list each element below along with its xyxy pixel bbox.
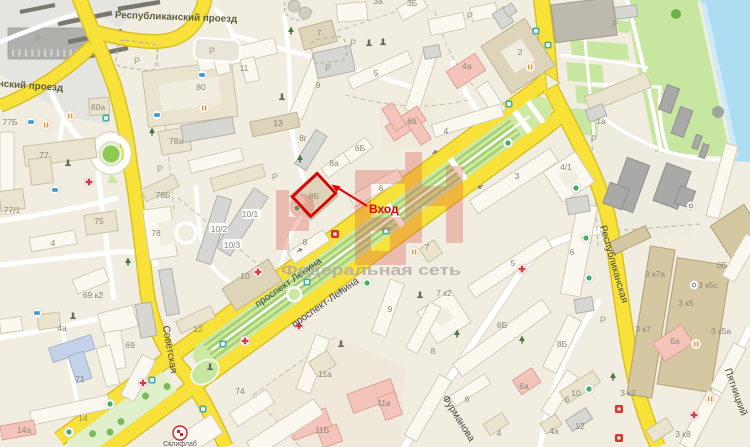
svg-text:3: 3 (515, 171, 520, 181)
svg-text:4а: 4а (549, 426, 559, 436)
svg-text:14а: 14а (17, 425, 31, 435)
svg-text:80: 80 (196, 82, 206, 92)
svg-text:5: 5 (374, 68, 379, 78)
svg-text:8Б: 8Б (557, 339, 568, 349)
svg-text:6: 6 (570, 247, 575, 257)
svg-text:78а: 78а (169, 136, 183, 146)
svg-text:75: 75 (94, 216, 104, 226)
svg-text:6а: 6а (407, 116, 417, 126)
svg-text:3 к7а: 3 к7а (645, 269, 666, 279)
svg-text:4: 4 (444, 126, 449, 136)
svg-text:Р: Р (325, 63, 331, 73)
svg-text:10/2: 10/2 (211, 224, 228, 234)
svg-text:71: 71 (75, 374, 85, 384)
svg-text:80а: 80а (91, 102, 105, 112)
svg-text:6: 6 (379, 183, 384, 193)
svg-text:2: 2 (518, 47, 523, 57)
svg-text:3 к8: 3 к8 (675, 429, 691, 439)
svg-text:Р: Р (209, 46, 215, 56)
svg-text:4: 4 (51, 238, 56, 248)
svg-text:8г: 8г (299, 133, 307, 143)
svg-text:12: 12 (575, 421, 585, 431)
svg-text:10: 10 (240, 271, 250, 281)
svg-text:7: 7 (317, 28, 322, 38)
svg-text:6Б: 6Б (717, 260, 728, 270)
svg-text:Р: Р (35, 34, 41, 44)
svg-text:Вход: Вход (369, 202, 399, 216)
svg-text:78Б: 78Б (155, 190, 170, 200)
svg-text:9: 9 (316, 80, 321, 90)
svg-text:4а: 4а (57, 323, 67, 333)
svg-text:Р: Р (612, 19, 618, 29)
svg-text:Р: Р (157, 164, 163, 174)
svg-text:3 к5а: 3 к5а (711, 326, 732, 336)
svg-text:78: 78 (151, 228, 161, 238)
svg-text:11Б: 11Б (315, 425, 330, 435)
svg-text:3а: 3а (373, 0, 383, 6)
svg-text:14: 14 (78, 413, 88, 423)
svg-text:Р: Р (134, 56, 140, 66)
svg-text:3 к5с: 3 к5с (698, 280, 719, 290)
svg-text:69 к2: 69 к2 (83, 290, 104, 300)
svg-text:6а: 6а (519, 381, 529, 391)
svg-text:8: 8 (431, 346, 436, 356)
svg-text:Склифлаб: Склифлаб (163, 440, 197, 447)
svg-text:10/1: 10/1 (242, 209, 259, 219)
svg-text:6Б: 6Б (355, 143, 366, 153)
svg-text:3 к5: 3 к5 (678, 298, 694, 308)
svg-text:3Б: 3Б (407, 0, 418, 8)
svg-text:77: 77 (39, 150, 49, 160)
svg-text:8а: 8а (329, 158, 339, 168)
svg-text:3 к7: 3 к7 (635, 324, 651, 334)
svg-text:12: 12 (193, 324, 203, 334)
svg-text:11в: 11в (377, 398, 391, 408)
svg-text:8: 8 (303, 237, 308, 247)
svg-text:3 к2: 3 к2 (620, 388, 636, 398)
svg-text:10: 10 (571, 388, 581, 398)
svg-text:11а: 11а (318, 369, 332, 379)
svg-text:4/1: 4/1 (560, 162, 572, 172)
svg-text:69: 69 (125, 340, 135, 350)
svg-text:1а: 1а (596, 116, 606, 126)
svg-text:11: 11 (240, 63, 249, 73)
svg-text:Р: Р (600, 315, 606, 325)
svg-text:10/3: 10/3 (224, 240, 241, 250)
svg-text:6: 6 (565, 394, 570, 404)
svg-text:4: 4 (497, 428, 502, 438)
svg-text:77/1: 77/1 (4, 205, 21, 215)
svg-text:9: 9 (388, 304, 393, 314)
svg-text:77Б: 77Б (2, 117, 17, 127)
svg-text:Р: Р (350, 38, 356, 48)
svg-text:6а: 6а (670, 336, 680, 346)
svg-text:6: 6 (465, 394, 470, 404)
svg-text:74: 74 (235, 386, 245, 396)
svg-text:13: 13 (273, 118, 283, 128)
svg-text:Р: Р (272, 172, 278, 182)
svg-text:4а: 4а (462, 61, 472, 71)
svg-text:Р: Р (591, 134, 597, 144)
svg-text:5: 5 (511, 258, 516, 268)
svg-text:7: 7 (425, 242, 430, 252)
svg-text:Р: Р (467, 11, 473, 21)
svg-text:7 к2: 7 к2 (436, 288, 452, 298)
svg-text:Федеральная сеть: Федеральная сеть (281, 262, 461, 279)
svg-text:6Б: 6Б (497, 320, 508, 330)
